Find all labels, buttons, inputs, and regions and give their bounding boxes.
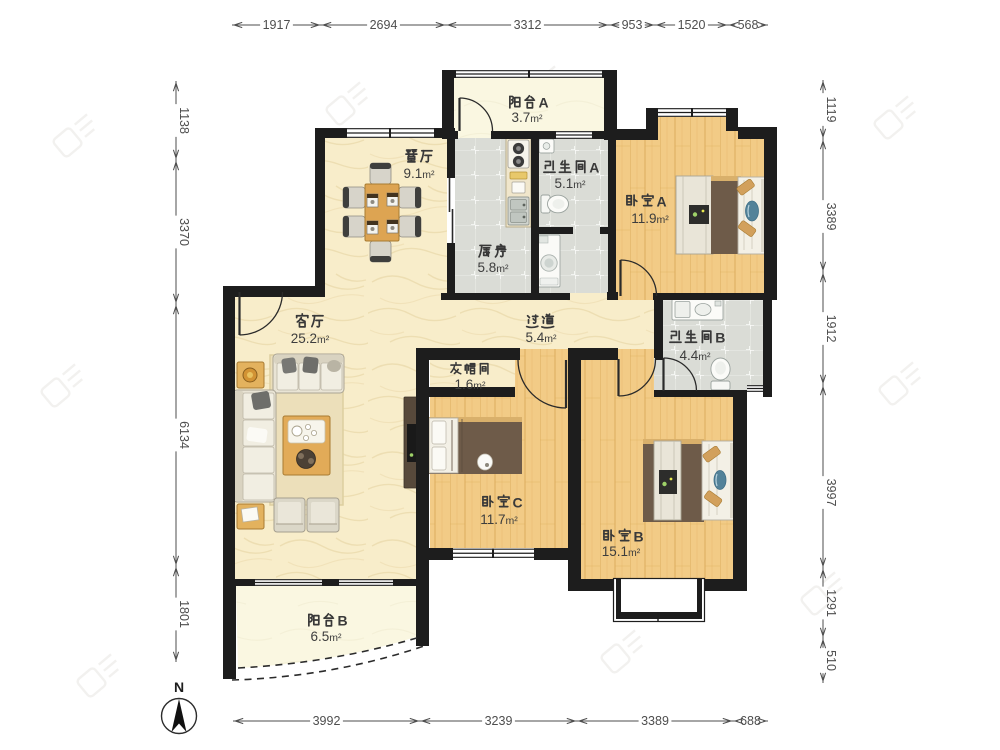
svg-text:1520: 1520 xyxy=(678,18,706,32)
svg-text:5.4m²: 5.4m² xyxy=(525,330,557,345)
svg-text:1291: 1291 xyxy=(824,589,838,617)
svg-text:953: 953 xyxy=(622,18,643,32)
svg-text:6134: 6134 xyxy=(177,421,191,449)
svg-text:4.4m²: 4.4m² xyxy=(679,348,711,363)
svg-text:A: A xyxy=(656,194,666,210)
svg-text:5.1m²: 5.1m² xyxy=(554,176,586,191)
svg-text:B: B xyxy=(715,330,725,346)
svg-text:2694: 2694 xyxy=(370,18,398,32)
svg-text:3239: 3239 xyxy=(485,714,513,728)
svg-text:1.6m²: 1.6m² xyxy=(454,377,486,392)
svg-text:1917: 1917 xyxy=(263,18,291,32)
svg-text:15.1m²: 15.1m² xyxy=(602,544,641,559)
svg-text:688: 688 xyxy=(740,714,761,728)
svg-text:1801: 1801 xyxy=(177,600,191,628)
svg-text:3997: 3997 xyxy=(824,479,838,507)
svg-text:3370: 3370 xyxy=(177,218,191,246)
svg-text:C: C xyxy=(512,495,522,511)
svg-text:6.5m²: 6.5m² xyxy=(310,629,342,644)
svg-text:1119: 1119 xyxy=(824,97,838,123)
svg-text:3.7m²: 3.7m² xyxy=(511,110,543,125)
svg-text:11.9m²: 11.9m² xyxy=(631,211,669,226)
svg-text:3992: 3992 xyxy=(313,714,341,728)
svg-text:568: 568 xyxy=(738,18,759,32)
svg-text:A: A xyxy=(538,95,548,111)
svg-text:11.7m²: 11.7m² xyxy=(480,512,518,527)
svg-text:510: 510 xyxy=(824,650,838,671)
svg-text:25.2m²: 25.2m² xyxy=(291,331,330,346)
svg-text:B: B xyxy=(633,529,643,545)
svg-text:1912: 1912 xyxy=(824,315,838,343)
svg-text:3389: 3389 xyxy=(824,203,838,231)
svg-text:3389: 3389 xyxy=(641,714,669,728)
svg-text:9.1m²: 9.1m² xyxy=(403,166,435,181)
svg-text:5.8m²: 5.8m² xyxy=(477,260,509,275)
svg-text:B: B xyxy=(337,613,347,629)
svg-text:A: A xyxy=(589,160,599,176)
svg-text:1138: 1138 xyxy=(177,107,191,134)
svg-text:3312: 3312 xyxy=(514,18,542,32)
svg-text:N: N xyxy=(174,679,184,695)
